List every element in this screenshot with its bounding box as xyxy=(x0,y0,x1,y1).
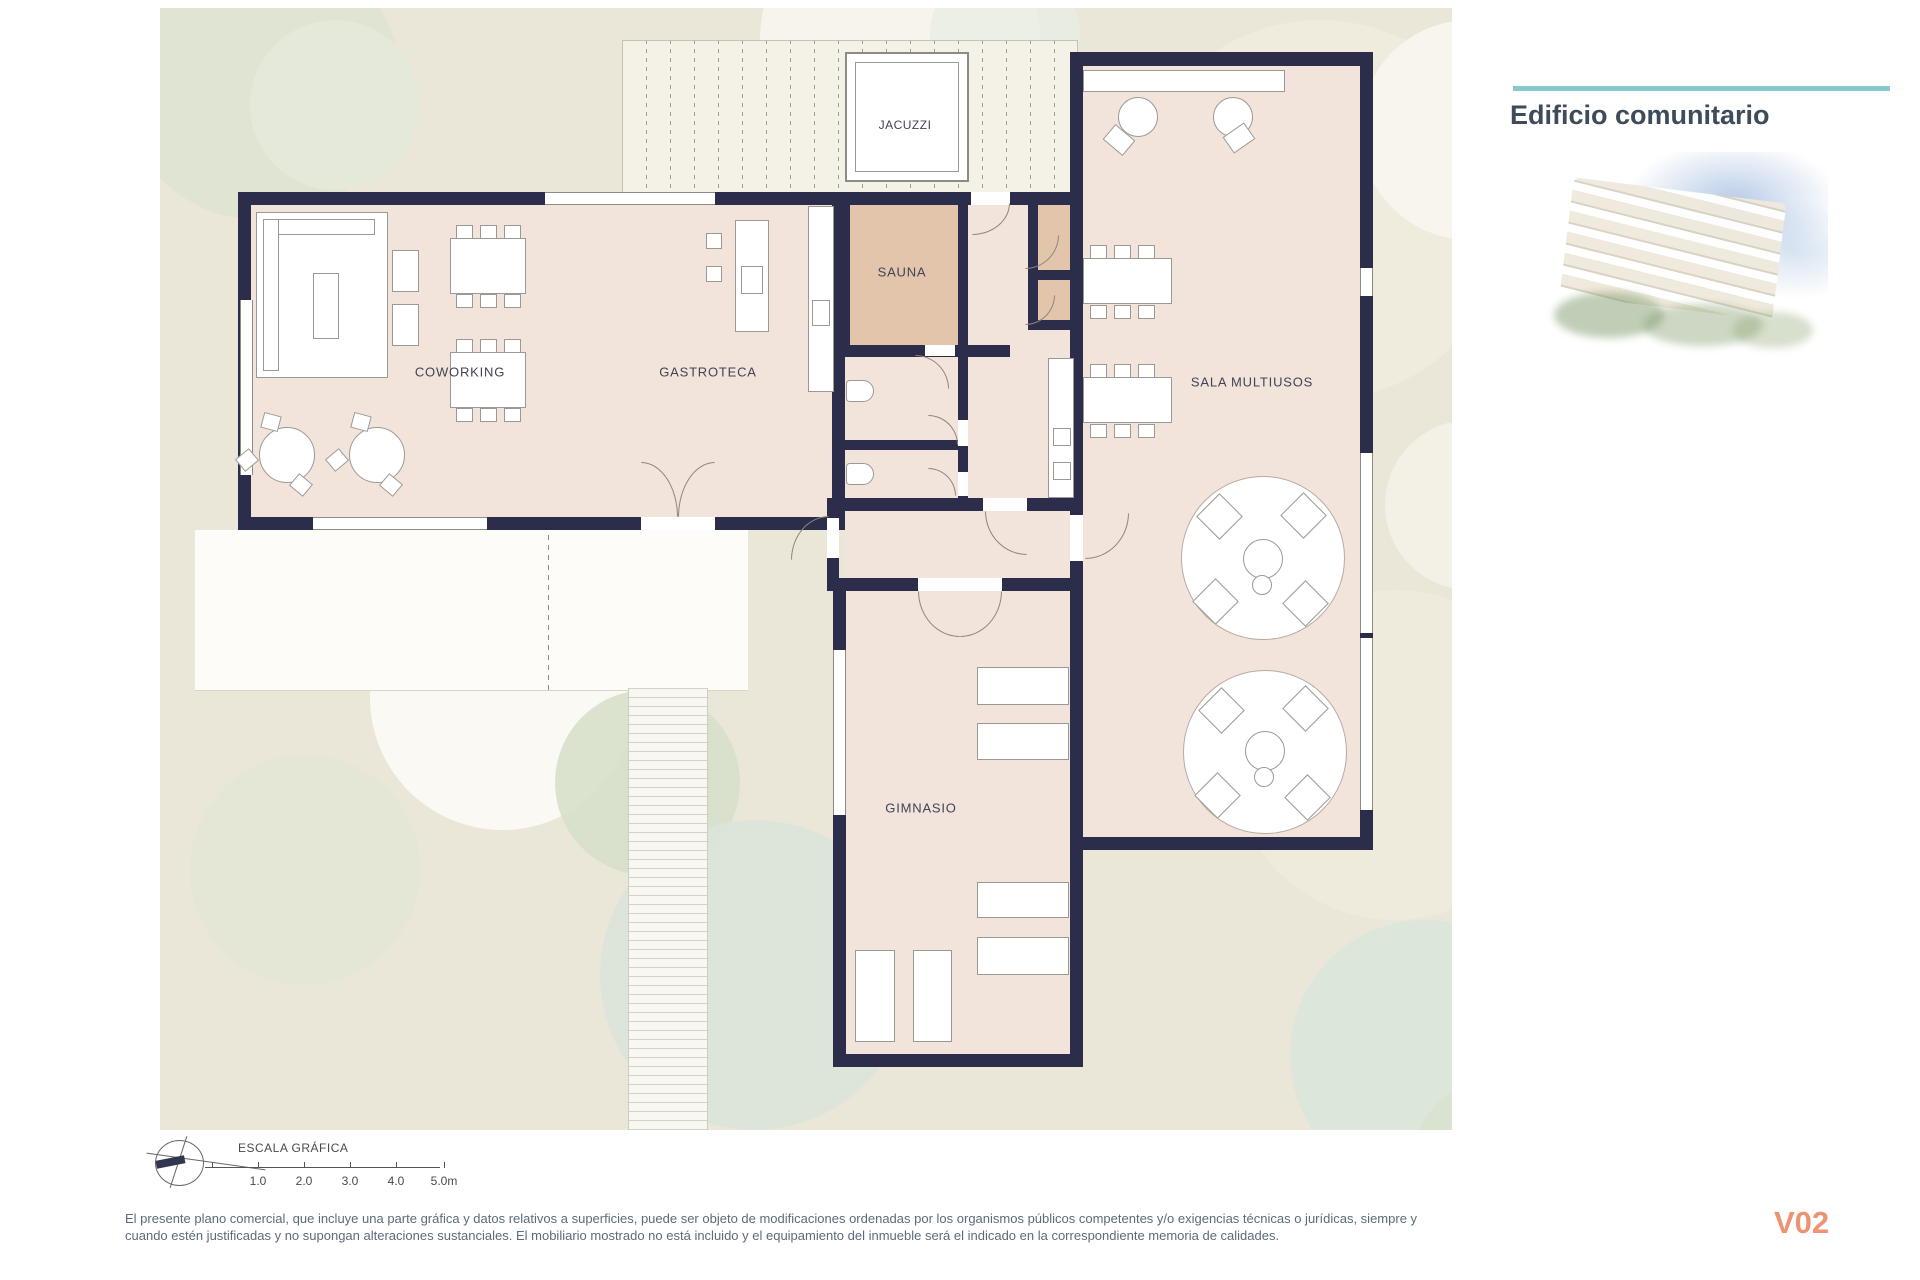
chair xyxy=(480,225,497,239)
door-opening xyxy=(983,498,1027,511)
wall-segment xyxy=(1070,837,1373,850)
round-table xyxy=(1245,731,1285,771)
chair xyxy=(1138,305,1155,319)
scale-bar-line xyxy=(205,1167,440,1168)
page-title: Edificio comunitario xyxy=(1510,100,1770,131)
furniture-table xyxy=(977,723,1069,760)
scale-tick-label: 5.0m xyxy=(431,1174,458,1188)
furniture-table xyxy=(977,667,1069,705)
wall-segment xyxy=(845,498,1070,511)
toilet xyxy=(846,463,874,485)
decking-path xyxy=(628,688,708,1130)
scale-tick xyxy=(212,1162,213,1168)
window xyxy=(313,517,487,530)
sofa-group xyxy=(256,212,388,378)
chair xyxy=(1138,424,1155,438)
sofa-side xyxy=(263,219,279,371)
chair xyxy=(1090,364,1107,378)
chair xyxy=(456,339,473,353)
room-label-sala-multiusos: SALA MULTIUSOS xyxy=(1191,375,1313,390)
version-badge: V02 xyxy=(1774,1205,1829,1241)
furniture-table xyxy=(450,352,526,408)
chair xyxy=(456,408,473,422)
vegetation xyxy=(1733,312,1813,348)
wall-segment xyxy=(1070,52,1373,66)
page: JACUZZI SAUNA COWORKING GASTROTECA SALA … xyxy=(0,0,1920,1280)
window xyxy=(1360,638,1373,810)
scale-bar-title: ESCALA GRÁFICA xyxy=(238,1141,348,1155)
scale-tick-label: 3.0 xyxy=(342,1174,359,1188)
furniture-table xyxy=(977,937,1069,975)
window xyxy=(833,650,846,815)
scale-tick xyxy=(396,1162,397,1168)
chair xyxy=(1114,245,1131,259)
accent-rule xyxy=(1513,86,1890,91)
scale-tick xyxy=(258,1162,259,1168)
building-illustration xyxy=(1548,152,1828,358)
round-table xyxy=(1254,767,1274,787)
sink xyxy=(1053,462,1071,480)
scale-tick-label: 2.0 xyxy=(296,1174,313,1188)
chair xyxy=(1090,305,1107,319)
sink xyxy=(1053,428,1071,446)
window xyxy=(1360,453,1373,633)
furniture-table xyxy=(977,882,1069,918)
door-opening xyxy=(958,472,968,496)
scale-tick xyxy=(304,1162,305,1168)
wall-segment xyxy=(845,192,1082,205)
chair xyxy=(480,294,497,308)
chair xyxy=(504,294,521,308)
furniture-table xyxy=(913,950,952,1042)
disclaimer-line1: El presente plano comercial, que incluye… xyxy=(125,1211,1417,1226)
furniture-table xyxy=(855,950,895,1042)
landscape-blob xyxy=(1290,920,1452,1130)
site-plan: JACUZZI SAUNA COWORKING GASTROTECA SALA … xyxy=(160,8,1452,1130)
chair xyxy=(1138,245,1155,259)
room-label-sauna: SAUNA xyxy=(878,265,927,280)
coffee-table xyxy=(313,273,339,339)
chair xyxy=(456,225,473,239)
furniture-table xyxy=(1083,70,1285,92)
scale-tick-label: 1.0 xyxy=(250,1174,267,1188)
room-label-jacuzzi: JACUZZI xyxy=(879,118,932,132)
room-label-coworking: COWORKING xyxy=(415,365,505,380)
wall-segment xyxy=(833,1054,1083,1067)
landscape-blob xyxy=(250,20,420,190)
scale-tick-label: 4.0 xyxy=(388,1174,405,1188)
chair xyxy=(456,294,473,308)
furniture-table xyxy=(392,250,419,292)
chair xyxy=(1090,245,1107,259)
landscape-blob xyxy=(190,755,420,985)
chair xyxy=(706,266,722,282)
sink xyxy=(741,266,763,294)
furniture-table xyxy=(1083,258,1172,304)
chair xyxy=(1090,424,1107,438)
terrace-joint-line xyxy=(548,530,549,690)
window xyxy=(545,192,715,205)
door-opening xyxy=(958,420,968,446)
sofa-back xyxy=(263,219,375,235)
round-table xyxy=(349,427,405,483)
round-table xyxy=(1252,575,1272,595)
chair xyxy=(1114,364,1131,378)
chair xyxy=(480,339,497,353)
round-table xyxy=(259,427,315,483)
jacuzzi-basin xyxy=(855,62,959,172)
round-table xyxy=(1243,539,1283,579)
door-opening xyxy=(1070,515,1083,561)
furniture-table xyxy=(450,238,526,294)
window xyxy=(1360,268,1373,296)
chair xyxy=(504,339,521,353)
chair xyxy=(1114,424,1131,438)
scale-tick xyxy=(444,1162,445,1168)
furniture-table xyxy=(392,304,419,346)
chair xyxy=(480,408,497,422)
chair xyxy=(504,225,521,239)
terrace xyxy=(195,530,748,691)
chair xyxy=(504,408,521,422)
chair xyxy=(706,233,722,249)
door-opening xyxy=(641,517,715,530)
furniture-table xyxy=(808,206,834,392)
chair xyxy=(1138,364,1155,378)
jacuzzi-area xyxy=(845,52,969,182)
legal-disclaimer: El presente plano comercial, que incluye… xyxy=(125,1210,1417,1244)
door-opening xyxy=(918,578,1002,591)
toilet xyxy=(846,380,874,402)
furniture-table xyxy=(1083,377,1172,423)
landscape-blob xyxy=(1385,420,1452,590)
sink xyxy=(812,300,830,326)
room-label-gimnasio: GIMNASIO xyxy=(885,801,956,816)
scale-tick xyxy=(350,1162,351,1168)
disclaimer-line2: cuando estén justificadas y no supongan … xyxy=(125,1228,1279,1243)
chair xyxy=(1114,305,1131,319)
room-label-gastroteca: GASTROTECA xyxy=(659,365,757,380)
door-opening xyxy=(925,345,955,356)
